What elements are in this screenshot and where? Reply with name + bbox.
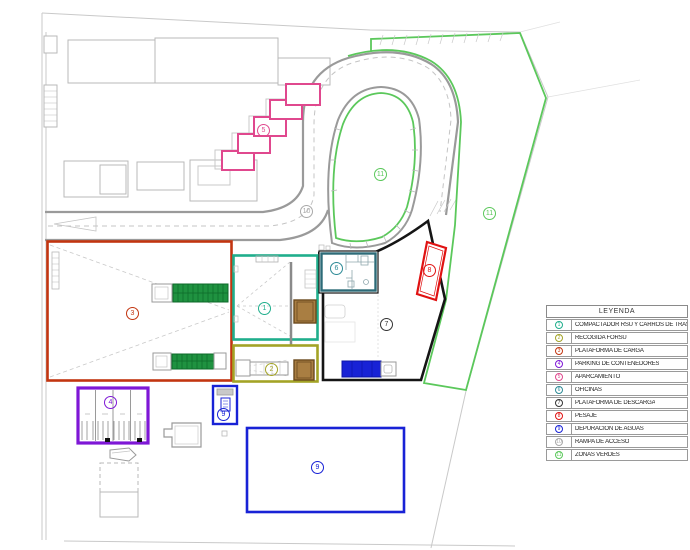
legend-item-number: 5 (555, 373, 563, 381)
legend-row: 9 DEPURACION DE AGUAS (546, 423, 688, 435)
legend-item-number: 2 (555, 334, 563, 342)
plan-marker-oficinas: 6 (330, 262, 343, 275)
legend-item-label: RECOGIDA FORSU (572, 335, 627, 341)
legend-item-label: PESAJE (572, 413, 597, 419)
legend-row: 11 ZONAS VERDES (546, 449, 688, 461)
legend-item-number: 1 (555, 321, 563, 329)
legend-row: 2 RECOGIDA FORSU (546, 332, 688, 344)
plan-marker-aparcamiento: 5 (257, 124, 270, 137)
legend-row: 1 COMPACTADOR RSU Y CARROS DE TRASLACION (546, 319, 688, 331)
compactor-unit (294, 300, 316, 323)
legend-row: 4 PARKING DE CONTENEDORES (546, 358, 688, 370)
truck-with-container (153, 353, 226, 370)
plan-marker-depuracion-basin: 9 (311, 461, 324, 474)
legend-item-number: 3 (555, 347, 563, 355)
plan-marker-descarga: 7 (380, 318, 393, 331)
plan-marker-parking: 4 (104, 396, 117, 409)
plan-marker-pesaje: 8 (423, 264, 436, 277)
legend-item-label: PARKING DE CONTENEDORES (572, 361, 659, 367)
zone-oficinas (319, 245, 378, 293)
legend-row: 7 PLATAFORMA DE DESCARGA (546, 397, 688, 409)
plan-marker-plataforma-carga: 3 (126, 307, 139, 320)
legend-item-number: 4 (555, 360, 563, 368)
legend-item-number: 8 (555, 412, 563, 420)
legend-item-label: OFICINAS (572, 387, 602, 393)
legend-item-number: 9 (555, 425, 563, 433)
legend-item-number: 10 (555, 438, 563, 446)
legend-item-label: PLATAFORMA DE CARGA (572, 348, 644, 354)
truck-with-container (152, 284, 228, 302)
compactor-unit (294, 360, 314, 380)
plan-marker-zona-verde-loop: 11 (374, 168, 387, 181)
site-plan-page: 1 2 3 4 5 6 7 8 9 9 10 11 11 LEYENDA 1 C… (0, 0, 690, 550)
plan-marker-compactador: 1 (258, 302, 271, 315)
legend-item-label: PLATAFORMA DE DESCARGA (572, 400, 655, 406)
legend-title: LEYENDA (546, 305, 688, 318)
legend-item-label: ZONAS VERDES (572, 452, 620, 458)
legend-item-label: RAMPA DE ACCESO (572, 439, 629, 445)
legend-item-number: 7 (555, 399, 563, 407)
legend-row: 10 RAMPA DE ACCESO (546, 436, 688, 448)
legend-panel: LEYENDA 1 COMPACTADOR RSU Y CARROS DE TR… (546, 305, 688, 462)
legend-row: 3 PLATAFORMA DE CARGA (546, 345, 688, 357)
legend-row: 5 APARCAMIENTO (546, 371, 688, 383)
blue-truck (342, 361, 396, 377)
legend-item-number: 11 (555, 451, 563, 459)
plan-marker-zona-verde-este: 11 (483, 207, 496, 220)
zone-depuracion-basin (247, 428, 404, 512)
zone-aparcamiento (222, 84, 320, 170)
site-plan-drawing (0, 0, 690, 550)
legend-row: 8 PESAJE (546, 410, 688, 422)
legend-row: 6 OFICINAS (546, 384, 688, 396)
plan-marker-depuracion-unit: 9 (217, 408, 230, 421)
zone-plataforma-de-carga (48, 242, 232, 381)
legend-item-label: APARCAMIENTO (572, 374, 620, 380)
parking-ticks (330, 33, 503, 249)
legend-item-label: DEPURACION DE AGUAS (572, 426, 644, 432)
legend-item-label: COMPACTADOR RSU Y CARROS DE TRASLACION (572, 322, 687, 328)
plan-marker-recogida-forsu: 2 (265, 363, 278, 376)
plan-marker-rampa-acceso: 10 (300, 205, 313, 218)
legend-item-number: 6 (555, 386, 563, 394)
